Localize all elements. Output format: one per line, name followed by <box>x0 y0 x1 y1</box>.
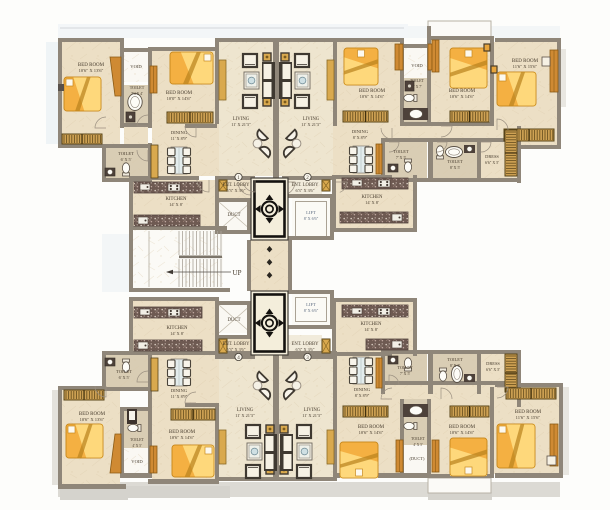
svg-text:DINING: DINING <box>171 130 188 135</box>
svg-text:5'3" X 3'6": 5'3" X 3'6" <box>227 188 246 193</box>
svg-text:10'0" X 14'6": 10'0" X 14'6" <box>167 96 192 101</box>
svg-text:6' X 5': 6' X 5' <box>121 157 132 162</box>
svg-text:14' X 8': 14' X 8' <box>365 200 379 205</box>
svg-text:VOID: VOID <box>130 64 142 69</box>
svg-text:11' X 21'3": 11' X 21'3" <box>301 122 321 127</box>
svg-text:11' X 21'3": 11' X 21'3" <box>302 413 322 418</box>
svg-text:10'6" X 13'6": 10'6" X 13'6" <box>80 417 105 422</box>
svg-text:10'6" X 13'6": 10'6" X 13'6" <box>79 68 104 73</box>
svg-text:TOILET: TOILET <box>118 151 134 156</box>
svg-text:8' X 5': 8' X 5' <box>450 363 461 368</box>
svg-text:TOILET: TOILET <box>447 357 463 362</box>
svg-text:LIFT: LIFT <box>306 302 316 307</box>
svg-text:6'3" X 3'6": 6'3" X 3'6" <box>296 347 315 352</box>
svg-text:DINING: DINING <box>171 388 188 393</box>
svg-text:6'3" X 3'6": 6'3" X 3'6" <box>296 188 315 193</box>
svg-text:5'3" X 3'6": 5'3" X 3'6" <box>227 347 246 352</box>
svg-text:7' X 5': 7' X 5' <box>396 155 407 160</box>
svg-text:11' X 8'9": 11' X 8'9" <box>171 136 188 141</box>
svg-text:8' X 8'9": 8' X 8'9" <box>353 135 368 140</box>
svg-text:10'6" X 14'6": 10'6" X 14'6" <box>360 94 385 99</box>
svg-text:7' X 5': 7' X 5' <box>400 371 411 376</box>
svg-text:LIFT: LIFT <box>306 210 316 215</box>
svg-text:11'6" X 15'6": 11'6" X 15'6" <box>513 64 538 69</box>
svg-text:7'4 X 4': 7'4 X 4' <box>131 92 143 96</box>
svg-text:11' X 21'3": 11' X 21'3" <box>235 413 255 418</box>
svg-text:(DUCT): (DUCT) <box>410 456 425 461</box>
svg-text:DUCT: DUCT <box>227 213 240 218</box>
svg-text:8' X 6'6": 8' X 6'6" <box>304 308 319 313</box>
svg-text:6'6" X 5': 6'6" X 5' <box>486 367 500 372</box>
svg-text:14' X 8': 14' X 8' <box>364 327 378 332</box>
svg-text:TOILET: TOILET <box>130 437 144 442</box>
svg-text:4' X 5': 4' X 5' <box>413 443 423 447</box>
svg-text:DUCT: DUCT <box>227 318 240 323</box>
svg-text:11' X 21'3": 11' X 21'3" <box>231 122 251 127</box>
svg-text:DINING: DINING <box>354 387 371 392</box>
svg-text:11' X 8'9": 11' X 8'9" <box>171 394 188 399</box>
svg-text:DRESS: DRESS <box>486 361 500 366</box>
svg-text:10'6" X 14'6": 10'6" X 14'6" <box>170 435 195 440</box>
svg-text:6'6" X 5': 6'6" X 5' <box>485 160 499 165</box>
svg-text:10'6" X 14'6": 10'6" X 14'6" <box>450 430 475 435</box>
svg-text:UP: UP <box>233 269 242 277</box>
svg-text:TOILET: TOILET <box>410 78 424 83</box>
svg-text:4' X 7': 4' X 7' <box>412 85 422 89</box>
svg-text:10'6" X 14'6": 10'6" X 14'6" <box>450 94 475 99</box>
svg-text:10'6" X 14'6": 10'6" X 14'6" <box>359 430 384 435</box>
svg-text:TOILET: TOILET <box>116 369 132 374</box>
svg-text:14' X 8': 14' X 8' <box>169 202 183 207</box>
svg-text:VOID: VOID <box>411 63 423 68</box>
svg-text:8' X 8'9": 8' X 8'9" <box>355 393 370 398</box>
svg-text:8' X 5': 8' X 5' <box>450 165 461 170</box>
svg-text:DRESS: DRESS <box>485 154 499 159</box>
svg-text:8' X 6'6": 8' X 6'6" <box>304 216 319 221</box>
svg-text:4' X 5': 4' X 5' <box>132 444 142 448</box>
svg-text:VOID: VOID <box>131 459 143 464</box>
svg-text:11'6" X 15'6": 11'6" X 15'6" <box>516 415 541 420</box>
svg-text:DINING: DINING <box>352 129 369 134</box>
svg-text:6' X 5': 6' X 5' <box>119 375 130 380</box>
svg-text:TOILET: TOILET <box>411 436 425 441</box>
svg-text:TOILET: TOILET <box>397 365 413 370</box>
svg-text:TOILET: TOILET <box>393 149 409 154</box>
svg-text:TOILET: TOILET <box>447 159 463 164</box>
svg-text:TOILET: TOILET <box>130 85 145 90</box>
svg-text:14' X 8': 14' X 8' <box>170 331 184 336</box>
